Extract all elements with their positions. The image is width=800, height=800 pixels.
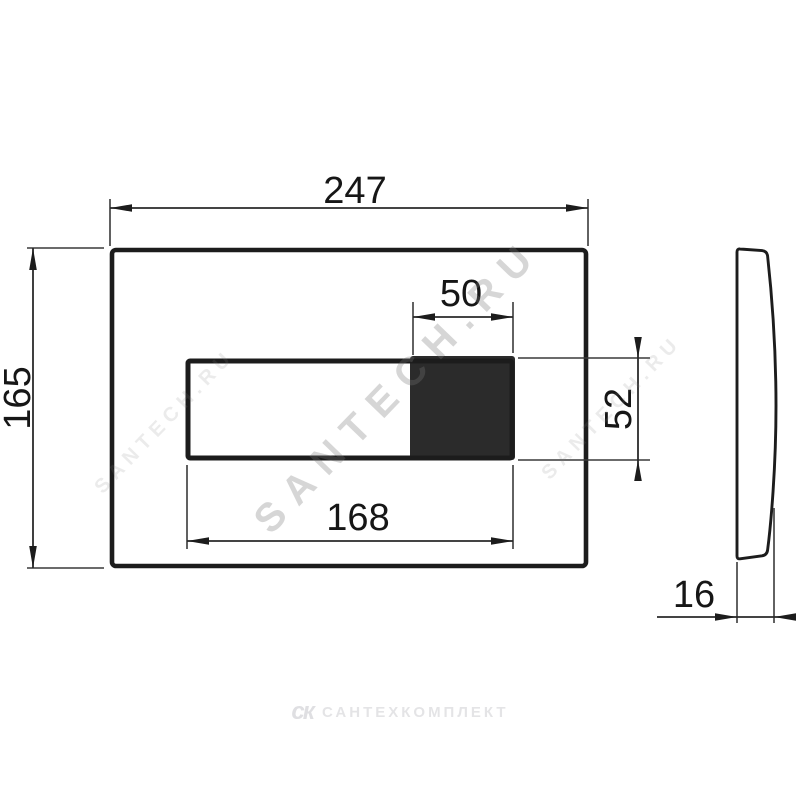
arrow-down-icon [634, 337, 642, 358]
arrow-up-icon [634, 460, 642, 481]
dimension-thickness: 16 [657, 508, 796, 623]
dim-label-thickness: 16 [673, 574, 715, 616]
side-view [737, 249, 776, 559]
arrow-left-icon [774, 613, 796, 621]
arrow-right-icon [715, 613, 737, 621]
dim-label-plate-height: 165 [0, 366, 39, 429]
arrow-up-icon [29, 248, 37, 270]
technical-drawing-canvas: 247 165 50 52 [0, 0, 800, 800]
dimension-plate-width: 247 [110, 170, 588, 246]
dimension-plate-height: 165 [0, 248, 104, 568]
arrow-down-icon [29, 546, 37, 568]
dim-label-button-width: 50 [440, 273, 482, 315]
arrow-left-icon [110, 204, 132, 212]
arrow-right-icon [566, 204, 588, 212]
dim-label-button-height: 52 [598, 388, 640, 430]
flush-plate-drawing: 247 165 50 52 [0, 0, 800, 800]
dual-flush-button-dark [410, 356, 515, 460]
plate-profile-outline [737, 249, 776, 559]
dim-label-opening-width: 168 [326, 497, 389, 539]
dim-label-plate-width: 247 [323, 170, 386, 212]
